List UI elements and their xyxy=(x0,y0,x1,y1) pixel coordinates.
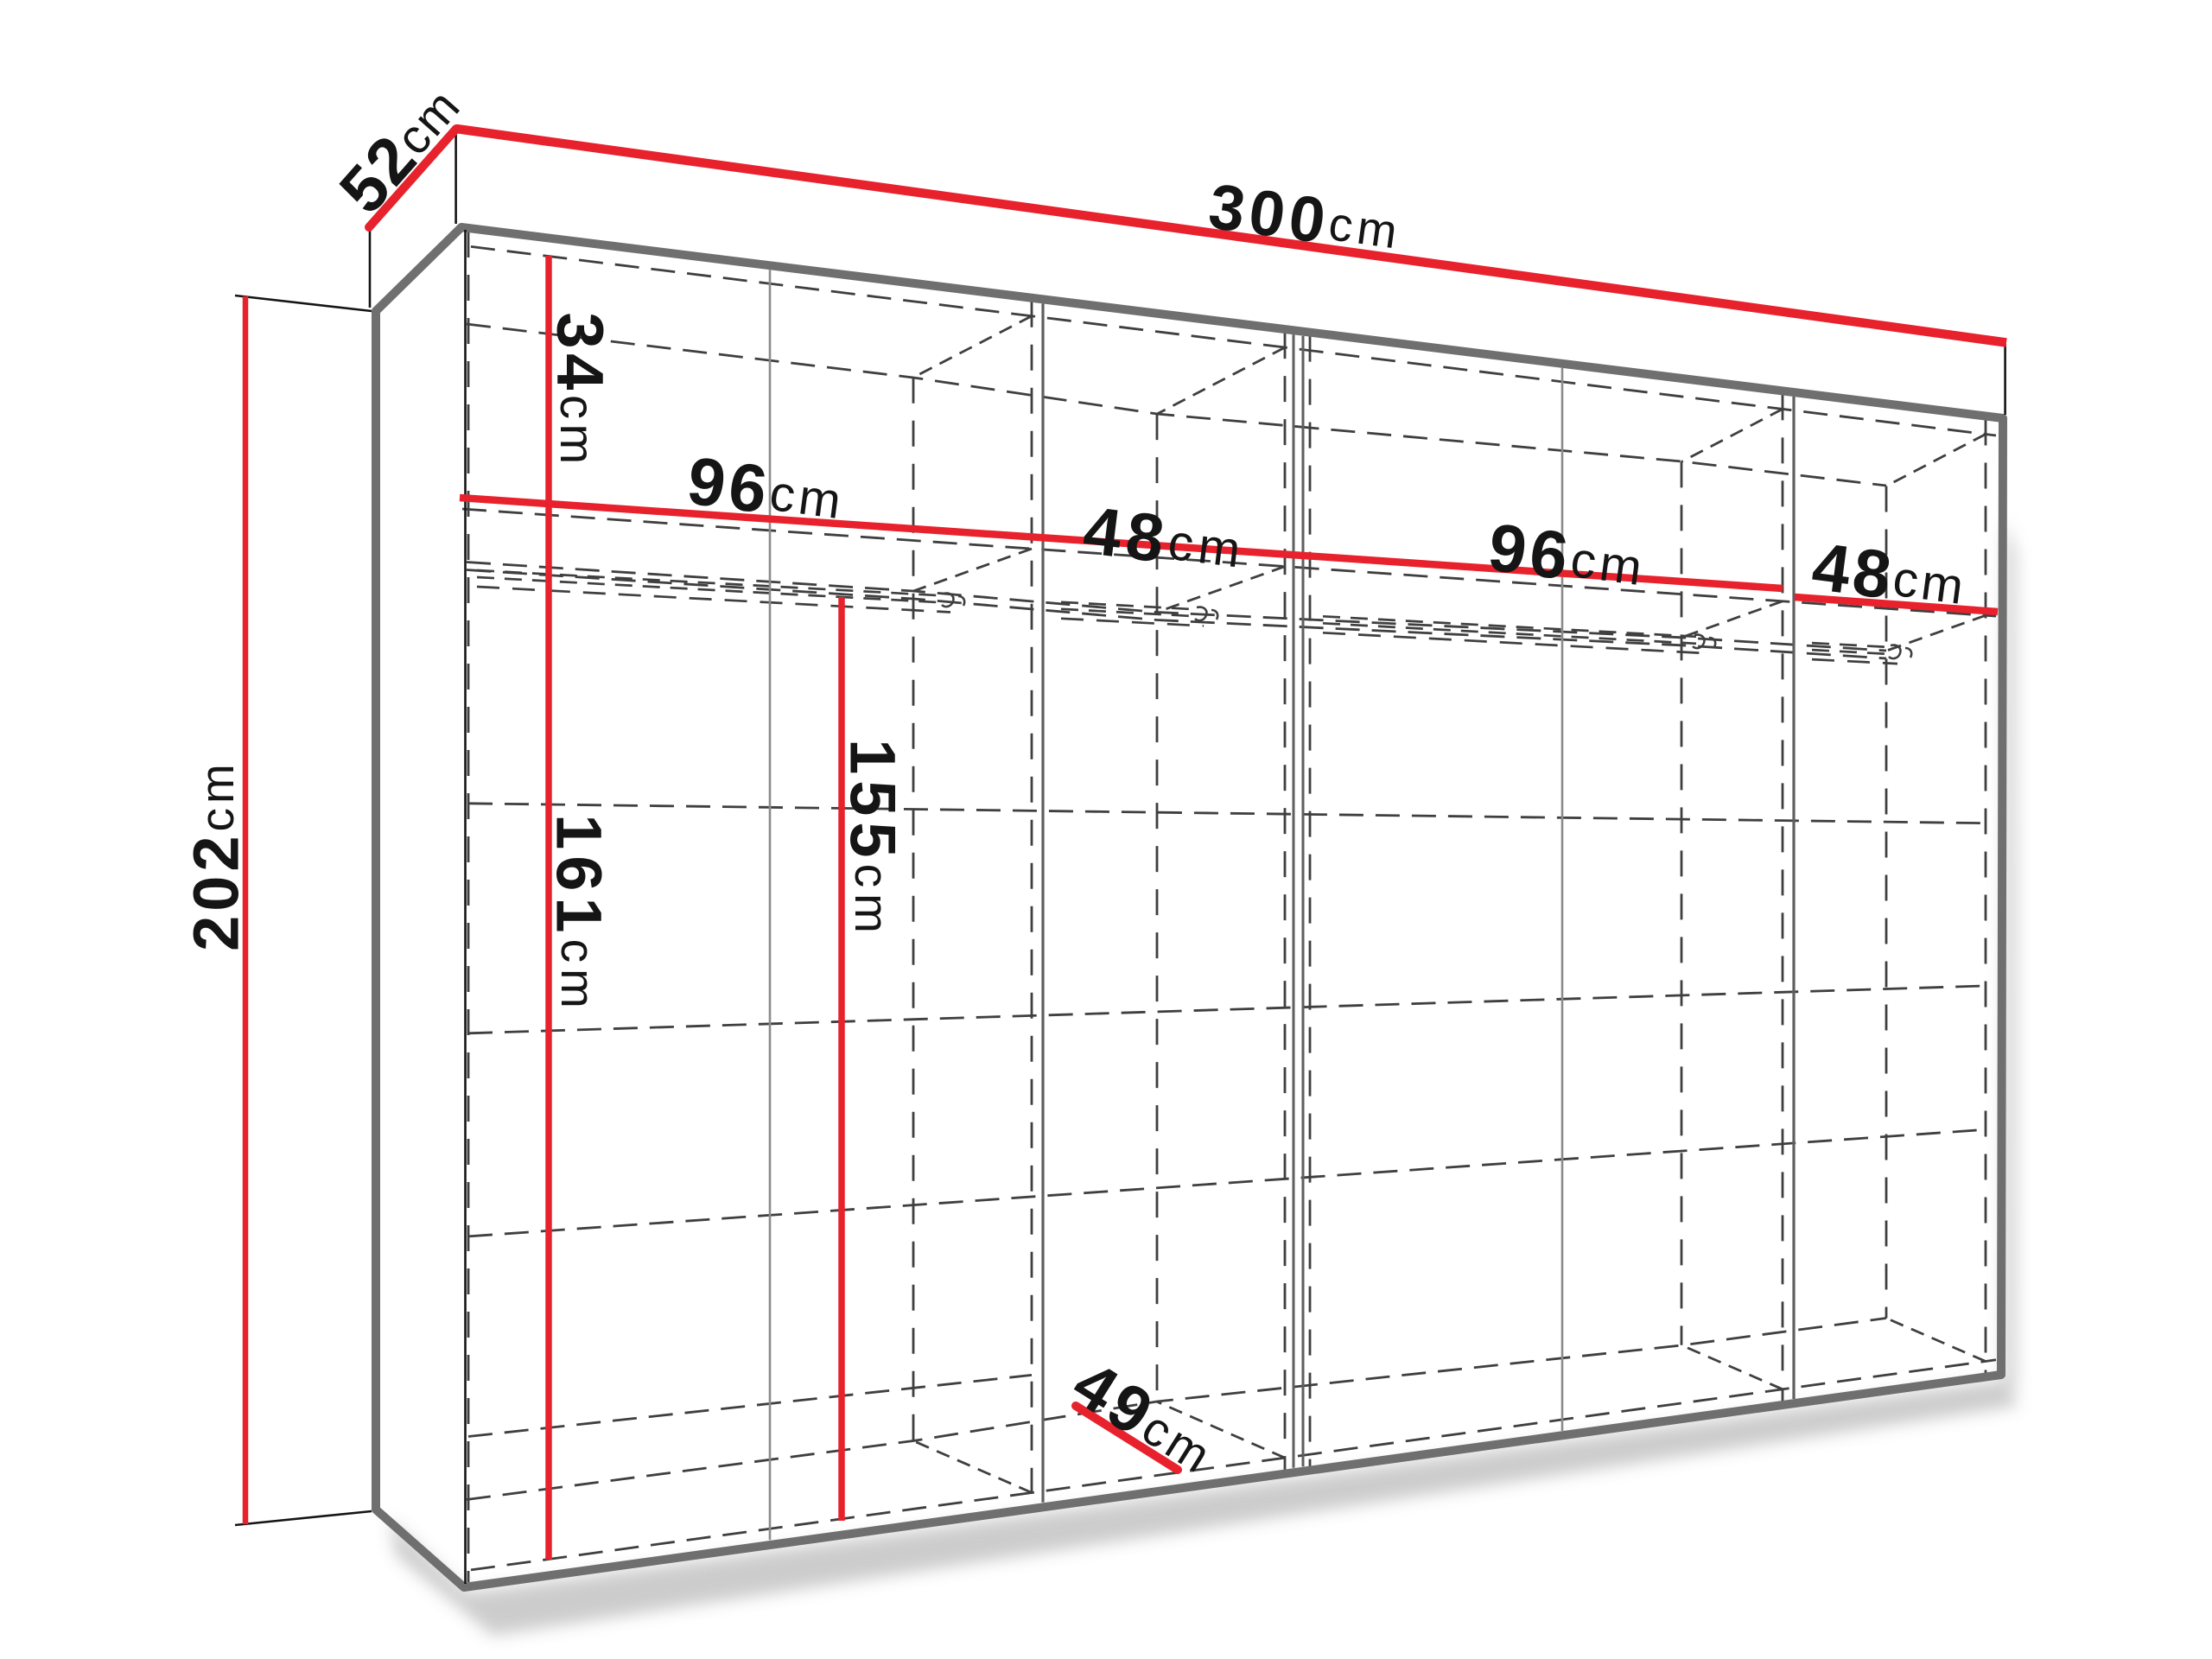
svg-text:202cm: 202cm xyxy=(181,760,252,951)
svg-text:34cm: 34cm xyxy=(543,312,617,468)
svg-text:155cm: 155cm xyxy=(837,739,909,939)
svg-text:161cm: 161cm xyxy=(543,814,615,1014)
